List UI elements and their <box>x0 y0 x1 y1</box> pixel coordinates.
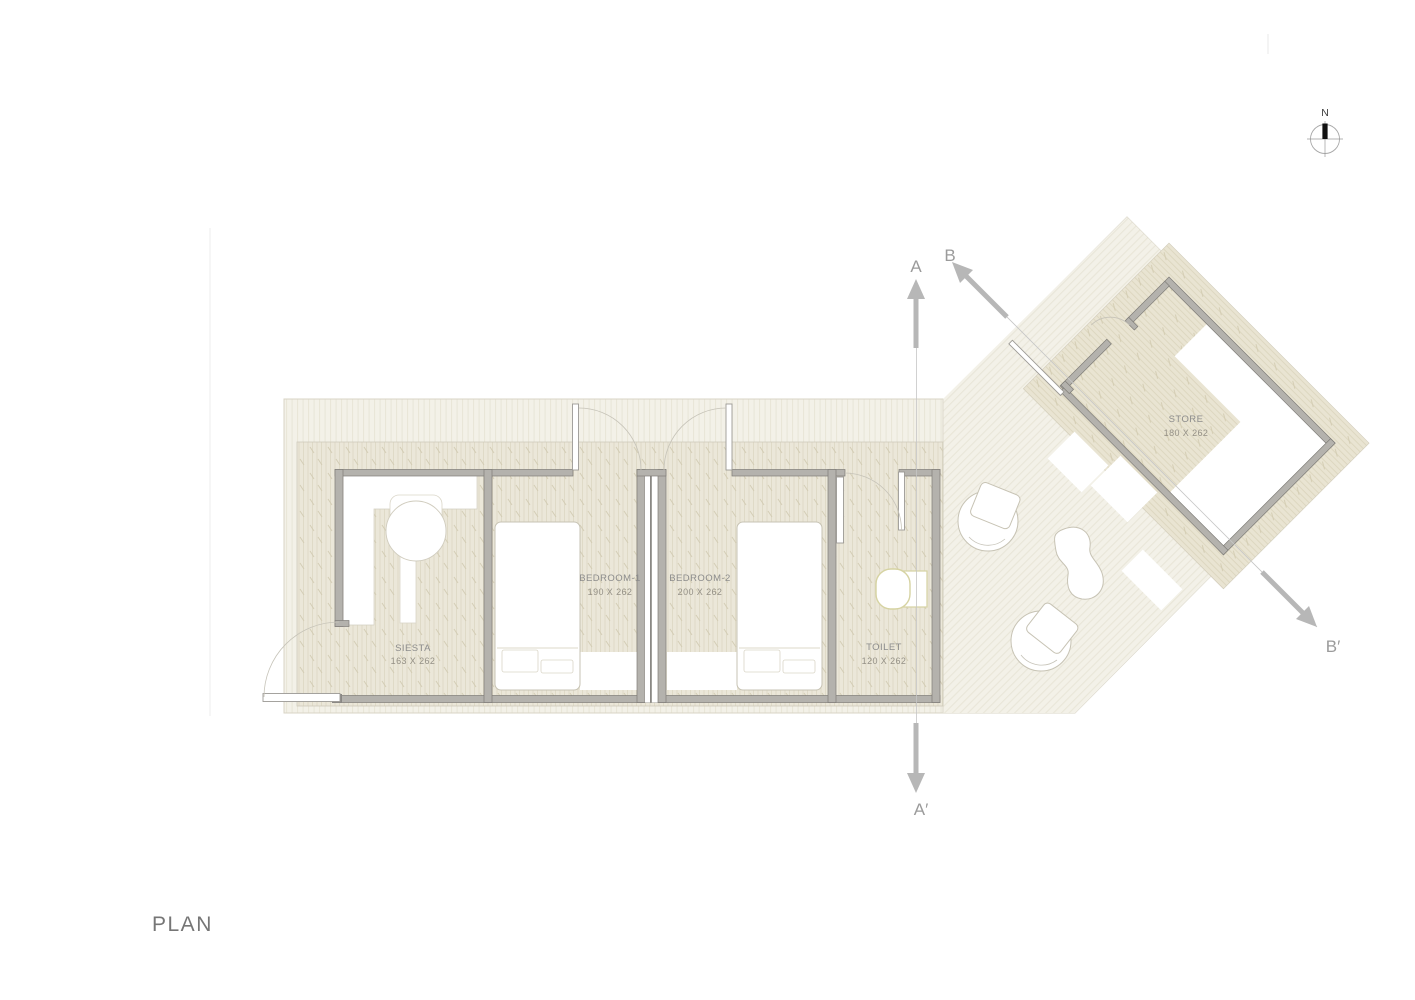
room-label-siesta: SIESTA <box>395 643 431 654</box>
compass-north-needle <box>1322 124 1327 140</box>
section-b-bar <box>966 276 1007 317</box>
section-b-prime-bar <box>1262 572 1303 613</box>
room-dim-bedroom1: 190 X 262 <box>588 587 633 597</box>
chair-seat <box>386 501 446 561</box>
bed-blanket <box>502 650 538 672</box>
toilet-bowl <box>876 569 910 609</box>
bedroom1-bed <box>495 522 580 690</box>
room-label-toilet: TOILET <box>866 642 902 653</box>
page-title: PLAN <box>152 913 213 936</box>
toilet-door-leaf <box>899 472 905 530</box>
section-label-a: A <box>910 257 922 276</box>
partition-bedroom1-bedroom2-b <box>658 470 666 703</box>
section-a-arrowhead <box>907 279 925 299</box>
room-dim-store: 180 X 262 <box>1164 428 1209 438</box>
wall-right <box>932 470 940 703</box>
room-label-store: STORE <box>1169 414 1204 425</box>
siesta-chair <box>386 495 446 561</box>
north-label: N <box>1321 107 1329 119</box>
bed-blanket <box>744 650 780 672</box>
room-dim-toilet: 120 X 262 <box>862 656 907 666</box>
room-label-bedroom2: BEDROOM-2 <box>669 573 731 584</box>
section-label-a-prime: A′ <box>914 800 929 819</box>
partition-top-cap <box>637 470 666 477</box>
bedroom2-door-leaf <box>726 404 732 470</box>
section-a-prime-arrowhead <box>907 773 925 793</box>
section-label-b: B <box>944 246 955 265</box>
wall-left-return <box>335 621 349 627</box>
plan-canvas: SIESTA 163 X 262 BEDROOM-1 190 X 262 BED… <box>0 0 1415 1000</box>
bedroom2-pocket-door <box>837 477 844 543</box>
room-dim-bedroom2: 200 X 262 <box>678 587 723 597</box>
room-dim-siesta: 163 X 262 <box>391 656 436 666</box>
partition-bedroom2-toilet <box>828 470 836 703</box>
bedroom1-floor-mat <box>580 652 640 690</box>
partition-center-line <box>650 470 652 703</box>
bed-blanket <box>783 660 815 673</box>
room-label-bedroom1: BEDROOM-1 <box>579 573 641 584</box>
bedroom1-door-leaf <box>573 404 579 470</box>
toilet-fixture <box>876 569 927 609</box>
section-label-b-prime: B′ <box>1326 637 1341 656</box>
bedroom2-floor-mat <box>667 652 737 690</box>
floor-plan-drawing: SIESTA 163 X 262 BEDROOM-1 190 X 262 BED… <box>0 0 1415 1000</box>
north-arrow: N <box>1307 107 1343 157</box>
partition-siesta-bedroom1 <box>484 470 492 703</box>
wall-left <box>335 470 343 627</box>
bed-blanket <box>541 660 573 673</box>
entry-door-leaf <box>263 694 340 702</box>
bedroom2-bed <box>737 522 822 690</box>
partition-bedroom1-bedroom2-a <box>637 470 645 703</box>
wall-top-left-segment <box>335 470 573 477</box>
